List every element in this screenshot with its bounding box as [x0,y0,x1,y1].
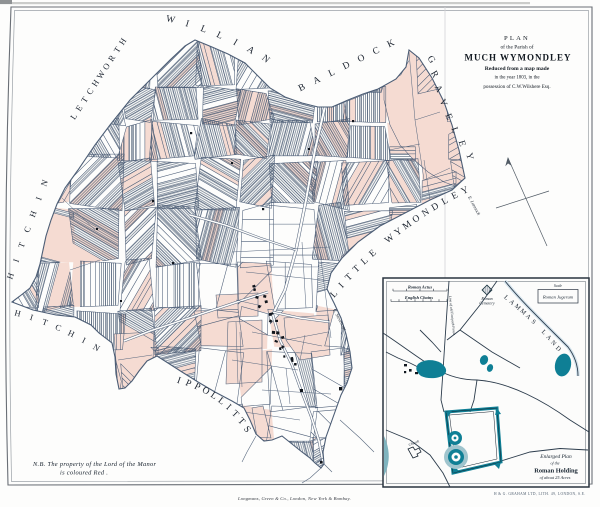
svg-text:MUCH WYMONDLEY: MUCH WYMONDLEY [464,53,571,63]
svg-text:Roman Jugerum: Roman Jugerum [542,295,574,300]
svg-text:of the Parish of: of the Parish of [500,44,533,51]
svg-text:Roman Actus: Roman Actus [408,285,433,290]
svg-text:N.B. The property of the Lord: N.B. The property of the Lord of the Man… [32,461,156,468]
svg-text:in the year 1803, in the: in the year 1803, in the [494,76,539,81]
svg-text:is coloured Red .: is coloured Red . [60,470,108,477]
svg-text:possession of C.W.Wilshere Esq: possession of C.W.Wilshere Esq. [483,83,550,90]
svg-text:PLAN: PLAN [504,35,530,42]
svg-text:of about 25 Acres: of about 25 Acres [540,475,571,480]
svg-text:Roman Holding: Roman Holding [534,468,578,475]
svg-text:of the: of the [551,461,560,466]
svg-text:English Chains: English Chains [404,295,433,300]
svg-text:Enlarged Plan: Enlarged Plan [539,454,572,460]
svg-text:Reduced from a map made: Reduced from a map made [485,66,550,72]
svg-text:Scale: Scale [554,284,563,288]
